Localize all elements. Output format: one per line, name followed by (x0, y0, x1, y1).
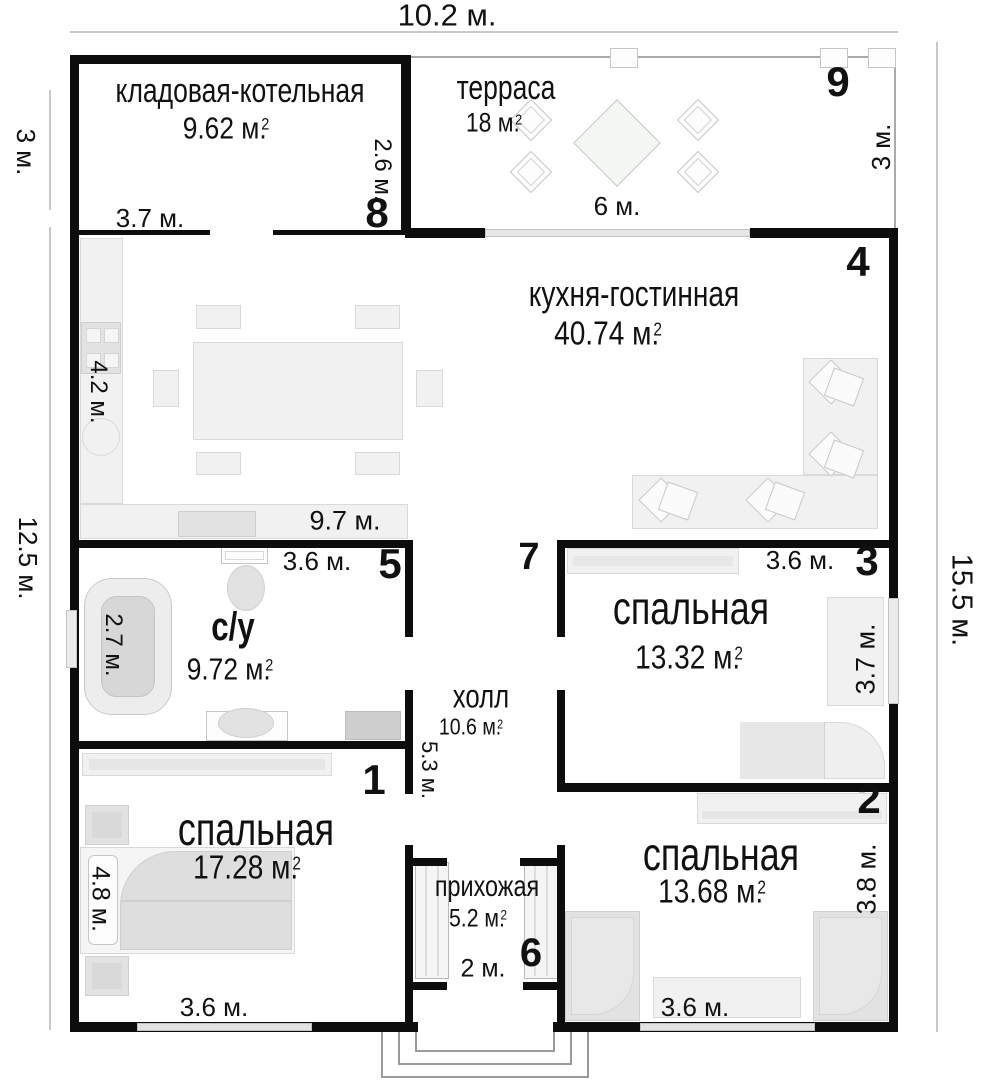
wall (523, 982, 565, 990)
wall (70, 540, 413, 548)
dim-label-left-top: 3 м. (13, 129, 39, 176)
room-area-storage: 9.62 м.2 (183, 113, 270, 144)
toilet-tank (221, 547, 268, 564)
terrace-chair (677, 99, 719, 141)
dining-chair (355, 305, 400, 329)
wall (557, 783, 898, 792)
room-area-kitchen: 40.74 м.2 (554, 317, 662, 350)
room-number-terrace: 9 (826, 61, 849, 103)
dining-chair (416, 370, 443, 407)
room-area-bedroom1: 17.28 м.2 (193, 851, 301, 884)
wall (405, 228, 485, 238)
window (888, 598, 899, 704)
dim-label-bedroom1-w: 3.6 м. (180, 994, 248, 1020)
wall (405, 690, 413, 748)
wall (520, 858, 565, 866)
room-area-hall: 10.6 м.2 (439, 716, 503, 739)
room-area-bedroom3: 13.32 м.2 (635, 641, 743, 674)
dim-label-bedroom1-h: 4.8 м. (88, 866, 113, 932)
bed (565, 911, 640, 1021)
wall (70, 741, 413, 749)
room-label-hall: холл (453, 680, 509, 713)
bed (813, 911, 888, 1021)
dim-label-right-top: 3 м. (868, 124, 894, 171)
dim-label-bedroom2-h: 3.8 м. (854, 843, 881, 914)
room-number-bedroom2: 2 (857, 778, 880, 820)
room-number-bathroom: 5 (378, 543, 401, 585)
dim-label-kitchen-w: 9.7 м. (309, 508, 380, 535)
terrace-chair (677, 151, 719, 193)
dim-label-bedroom3-w: 3.6 м. (766, 547, 834, 573)
kitchen-counter-section (178, 511, 256, 537)
room-label-bathroom: с/у (211, 607, 254, 647)
room-label-kitchen: кухня-гостинная (529, 276, 739, 312)
floor-plan: 10.2 м. 3 м. 12.5 м. 3 м. 15.5 м. кладов… (0, 0, 1005, 1080)
room-number-entry: 6 (520, 933, 542, 973)
room-number-bedroom1: 1 (362, 759, 385, 801)
dining-chair (196, 305, 241, 329)
wall (405, 858, 447, 866)
dim-label-left-main: 12.5 м. (15, 517, 41, 600)
room-number-kitchen: 4 (846, 241, 869, 283)
bed-fold (740, 722, 825, 779)
porch-steps (415, 1032, 555, 1052)
kitchen-sink (82, 418, 120, 456)
room-label-bedroom3: спальная (613, 585, 769, 631)
dining-chair (153, 370, 179, 407)
wall (557, 540, 565, 637)
room-area-entry: 5.2 м.2 (449, 907, 507, 932)
terrace-pillar (868, 48, 896, 68)
wall (405, 540, 413, 637)
dim-label-right-main: 15.5 м. (947, 554, 976, 647)
wall (557, 540, 898, 548)
dining-table (193, 342, 403, 440)
room-label-entry: прихожая (435, 872, 539, 902)
dim-label-entry-w: 2 м. (461, 957, 506, 982)
room-label-terrace: терраса (457, 71, 556, 105)
window (640, 1023, 815, 1031)
wall (405, 982, 447, 990)
nightstand (85, 805, 129, 845)
dim-line-left-upper (49, 90, 51, 210)
wall (557, 690, 565, 792)
dresser (567, 548, 739, 574)
wall (557, 845, 565, 1032)
bath-mat (345, 711, 401, 740)
room-number-storage: 8 (365, 192, 388, 234)
room-area-bathroom: 9.72 м.2 (187, 654, 274, 685)
terrace-table (573, 99, 661, 187)
dim-label-kitchen-h: 4.2 м. (86, 360, 110, 423)
wall (750, 228, 898, 238)
dim-label-storage-w: 3.7 м. (116, 205, 184, 231)
shelf (82, 753, 332, 776)
room-area-terrace: 18 м.2 (466, 110, 522, 137)
bathroom-sink-basin (218, 708, 274, 738)
dining-chair (355, 452, 400, 475)
dim-label-bedroom3-h: 3.7 м. (853, 623, 880, 694)
wall (405, 741, 413, 794)
room-label-bedroom1: спальная (178, 806, 334, 852)
room-label-bedroom2: спальная (643, 831, 799, 877)
wall (405, 845, 413, 1032)
room-number-bedroom3: 3 (855, 540, 878, 582)
dim-label-bathroom-h: 2.7 м. (101, 613, 125, 676)
wall (70, 55, 411, 64)
dim-label-bedroom2-w: 3.6 м. (661, 994, 729, 1020)
window (137, 1023, 312, 1031)
dim-label-hall-h: 5.3 м. (418, 741, 440, 799)
window (66, 610, 77, 668)
dim-label-total-width: 10.2 м. (398, 0, 497, 31)
dim-label-terrace-w: 6 м. (594, 193, 641, 219)
dim-line-right (936, 42, 938, 1032)
terrace-pillar (610, 48, 638, 68)
terrace-chair (510, 151, 552, 193)
dining-chair (196, 452, 241, 475)
window (485, 229, 750, 237)
wall (401, 55, 411, 235)
dim-label-bathroom-w: 3.6 м. (283, 548, 351, 574)
dim-line-left-lower (49, 227, 51, 1030)
room-area-bedroom2: 13.68 м.2 (658, 875, 766, 908)
nightstand (85, 956, 129, 996)
room-label-storage: кладовая-котельная (116, 74, 365, 108)
bed-seam (121, 900, 291, 902)
room-number-hall: 7 (518, 538, 539, 576)
